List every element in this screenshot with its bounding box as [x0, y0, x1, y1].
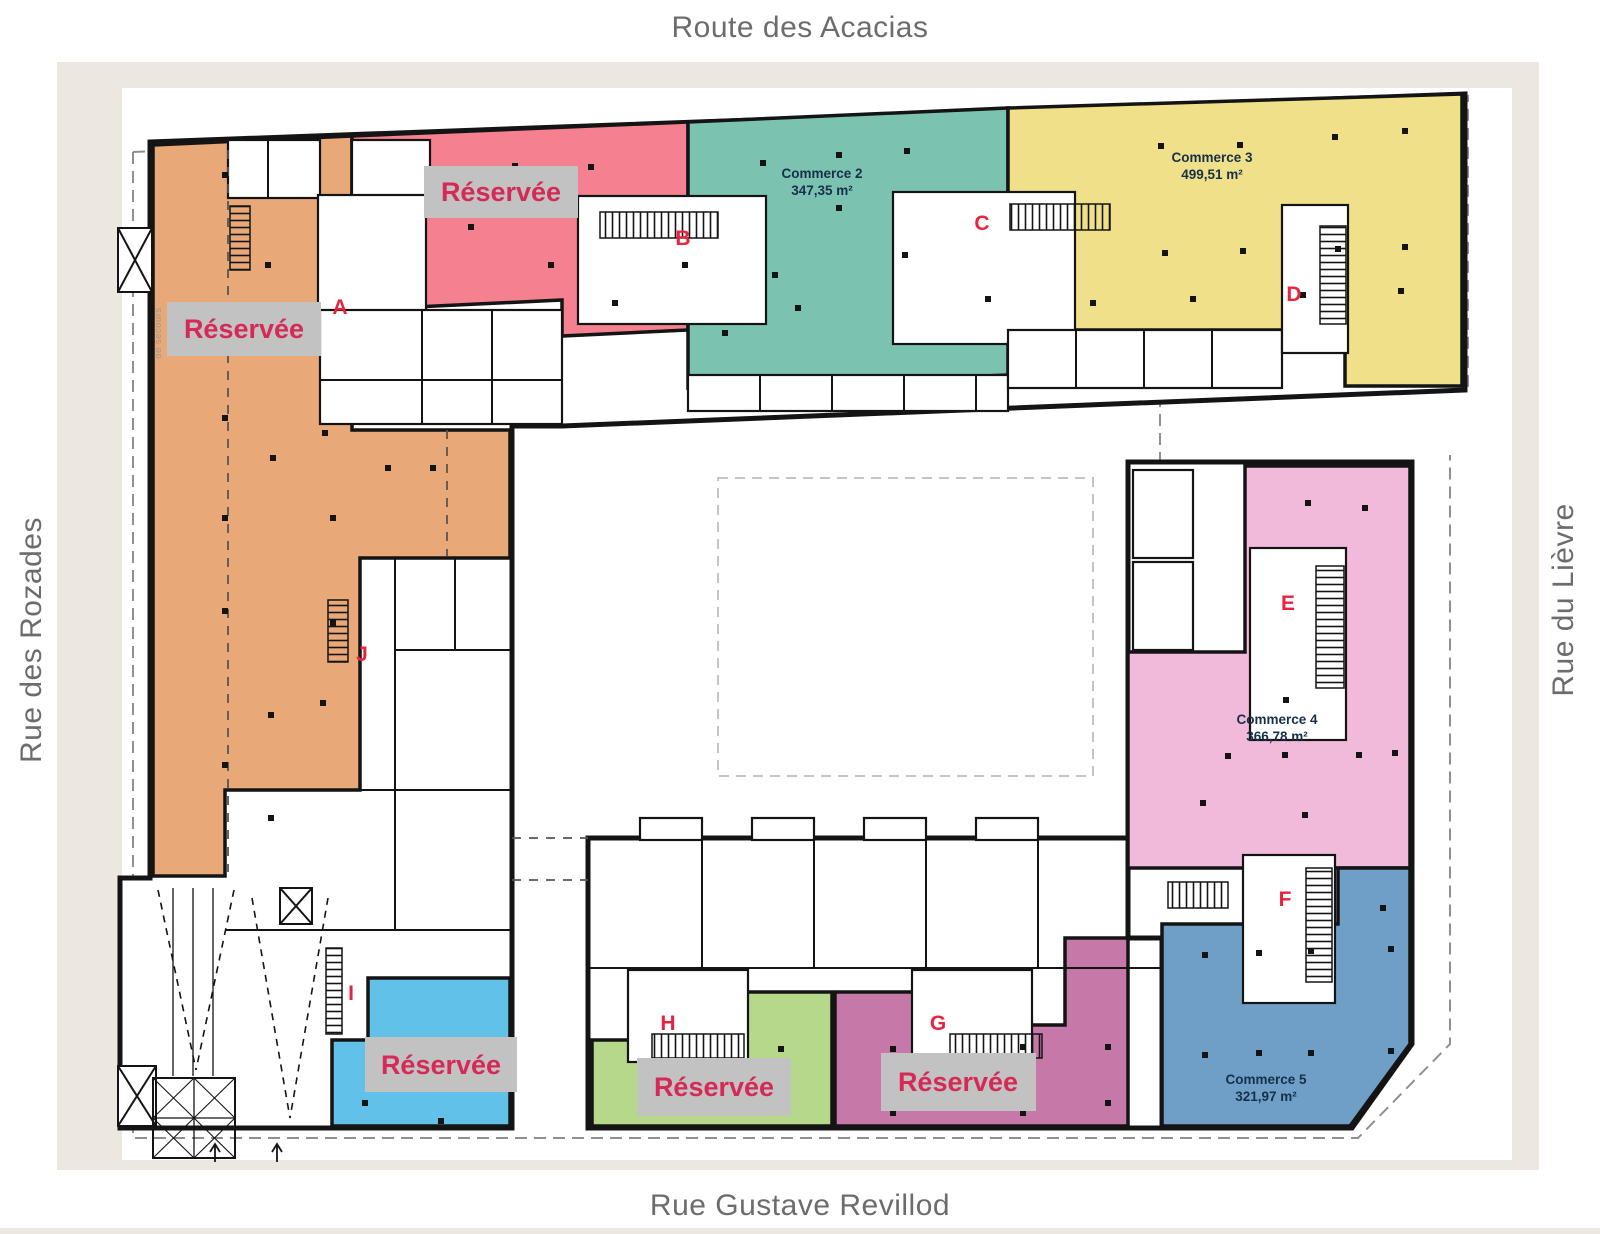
- entrance-letter-g: G: [930, 1012, 946, 1035]
- reserved-label-sky: Réservée: [381, 1050, 501, 1080]
- commerce-3-area: 499,51 m²: [1181, 167, 1243, 182]
- commerce-3-name: Commerce 3: [1171, 150, 1253, 165]
- entrance-letter-i: I: [348, 982, 354, 1005]
- commerce-5-name: Commerce 5: [1225, 1072, 1307, 1087]
- reserved-label-orange: Réservée: [184, 314, 304, 344]
- commerce-2-area: 347,35 m²: [791, 183, 853, 198]
- entrance-letter-c: C: [974, 212, 989, 235]
- floor-plan-page: Route des Acacias Rue Gustave Revillod R…: [0, 0, 1600, 1234]
- commerce-5-area: 321,97 m²: [1235, 1089, 1297, 1104]
- commerce-4-name: Commerce 4: [1236, 712, 1318, 727]
- commerce-2-name: Commerce 2: [781, 166, 862, 181]
- floor-plan: Réservée Réservée Réservée Réservée Rése…: [0, 0, 1600, 1234]
- entrance-letter-e: E: [1281, 592, 1295, 615]
- emergency-exit-label: de secours: [153, 307, 164, 358]
- entrance-letter-h: H: [660, 1012, 675, 1035]
- entrance-letter-f: F: [1279, 888, 1292, 911]
- entrance-letter-a: A: [332, 296, 347, 319]
- commerce-4-area: 366,78 m²: [1246, 729, 1308, 744]
- entrance-letter-j: J: [356, 643, 368, 666]
- reserved-label-green: Réservée: [654, 1072, 774, 1102]
- reserved-label-pink: Réservée: [441, 177, 561, 207]
- entrance-letter-d: D: [1286, 283, 1301, 306]
- reserved-label-plum: Réservée: [898, 1067, 1018, 1097]
- entrance-letter-b: B: [675, 227, 690, 250]
